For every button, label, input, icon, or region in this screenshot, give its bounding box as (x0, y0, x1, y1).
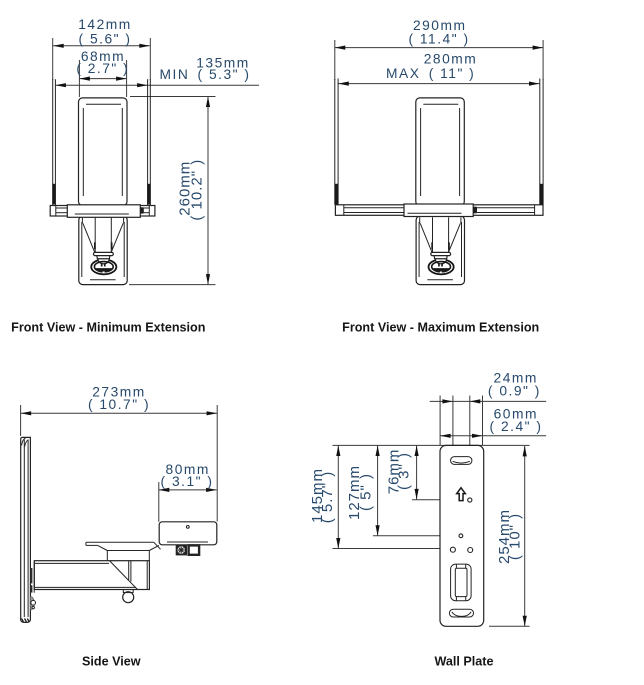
svg-text:( 11" ): ( 11" ) (429, 66, 476, 81)
svg-text:MAX: MAX (386, 66, 420, 81)
svg-text:Front View - Minimum Extension: Front View - Minimum Extension (11, 320, 205, 334)
svg-text:( 10.7" ): ( 10.7" ) (88, 397, 150, 412)
svg-text:( 2.4" ): ( 2.4" ) (490, 419, 543, 434)
svg-text:( 0.9" ): ( 0.9" ) (488, 384, 541, 399)
svg-text:142mm: 142mm (78, 17, 132, 32)
svg-text:( 3.1" ): ( 3.1" ) (161, 474, 214, 489)
svg-text:( 5" ): ( 5" ) (357, 473, 374, 511)
svg-text:Side View: Side View (82, 654, 141, 668)
svg-text:( 2.7" ): ( 2.7" ) (76, 61, 129, 76)
svg-text:( 5.3" ): ( 5.3" ) (198, 67, 251, 82)
svg-text:MIN: MIN (160, 67, 190, 82)
svg-text:280mm: 280mm (424, 52, 478, 67)
svg-text:( 5.6" ): ( 5.6" ) (79, 31, 132, 46)
svg-text:( 5.7" ): ( 5.7" ) (319, 471, 336, 524)
svg-text:Front View - Maximum Extension: Front View - Maximum Extension (342, 320, 539, 334)
svg-text:Wall Plate: Wall Plate (434, 654, 493, 668)
svg-text:( 10.2" ): ( 10.2" ) (189, 159, 206, 221)
svg-text:( 3" ): ( 3" ) (396, 452, 413, 490)
svg-text:( 11.4" ): ( 11.4" ) (408, 31, 469, 46)
svg-text:( 10" ): ( 10" ) (507, 513, 524, 560)
